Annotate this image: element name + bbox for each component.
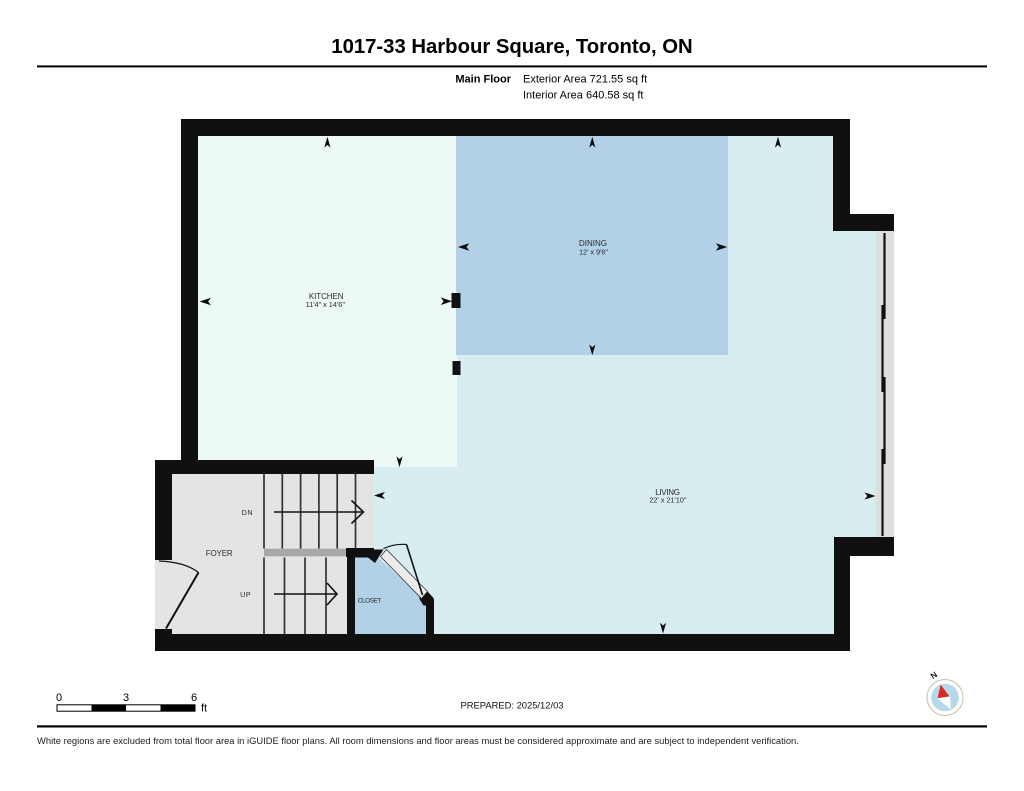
svg-text:12' x 9'6": 12' x 9'6" <box>579 247 608 256</box>
svg-text:1017-33 Harbour Square, Toront: 1017-33 Harbour Square, Toronto, ON <box>331 36 692 58</box>
svg-text:Interior Area 640.58 sq ft: Interior Area 640.58 sq ft <box>523 90 643 102</box>
svg-text:DN: DN <box>242 508 253 517</box>
svg-text:ft: ft <box>201 703 207 715</box>
svg-text:CLOSET: CLOSET <box>358 598 382 605</box>
svg-text:FOYER: FOYER <box>206 549 233 558</box>
svg-text:Main Floor: Main Floor <box>455 74 511 86</box>
svg-text:Exterior Area 721.55 sq ft: Exterior Area 721.55 sq ft <box>523 74 647 86</box>
svg-text:6: 6 <box>191 692 197 704</box>
svg-text:White regions are excluded fro: White regions are excluded from total fl… <box>37 735 799 746</box>
svg-text:0: 0 <box>56 692 62 704</box>
svg-text:11'4" x 14'6": 11'4" x 14'6" <box>306 300 346 309</box>
svg-text:UP: UP <box>240 590 251 599</box>
svg-text:N: N <box>928 669 939 681</box>
svg-text:PREPARED: 2025/12/03: PREPARED: 2025/12/03 <box>460 700 563 711</box>
svg-text:22' x 21'10": 22' x 21'10" <box>649 496 686 505</box>
svg-text:3: 3 <box>123 692 129 704</box>
